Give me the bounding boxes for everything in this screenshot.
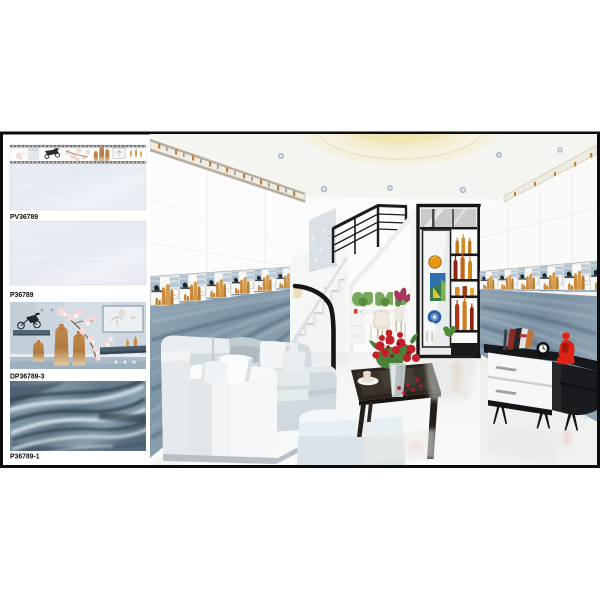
svg-text:PV36789: PV36789 [10,214,38,221]
svg-text:DP36789-3: DP36789-3 [10,374,45,381]
svg-text:P36789: P36789 [10,292,34,299]
svg-text:P36789-1: P36789-1 [10,454,40,461]
